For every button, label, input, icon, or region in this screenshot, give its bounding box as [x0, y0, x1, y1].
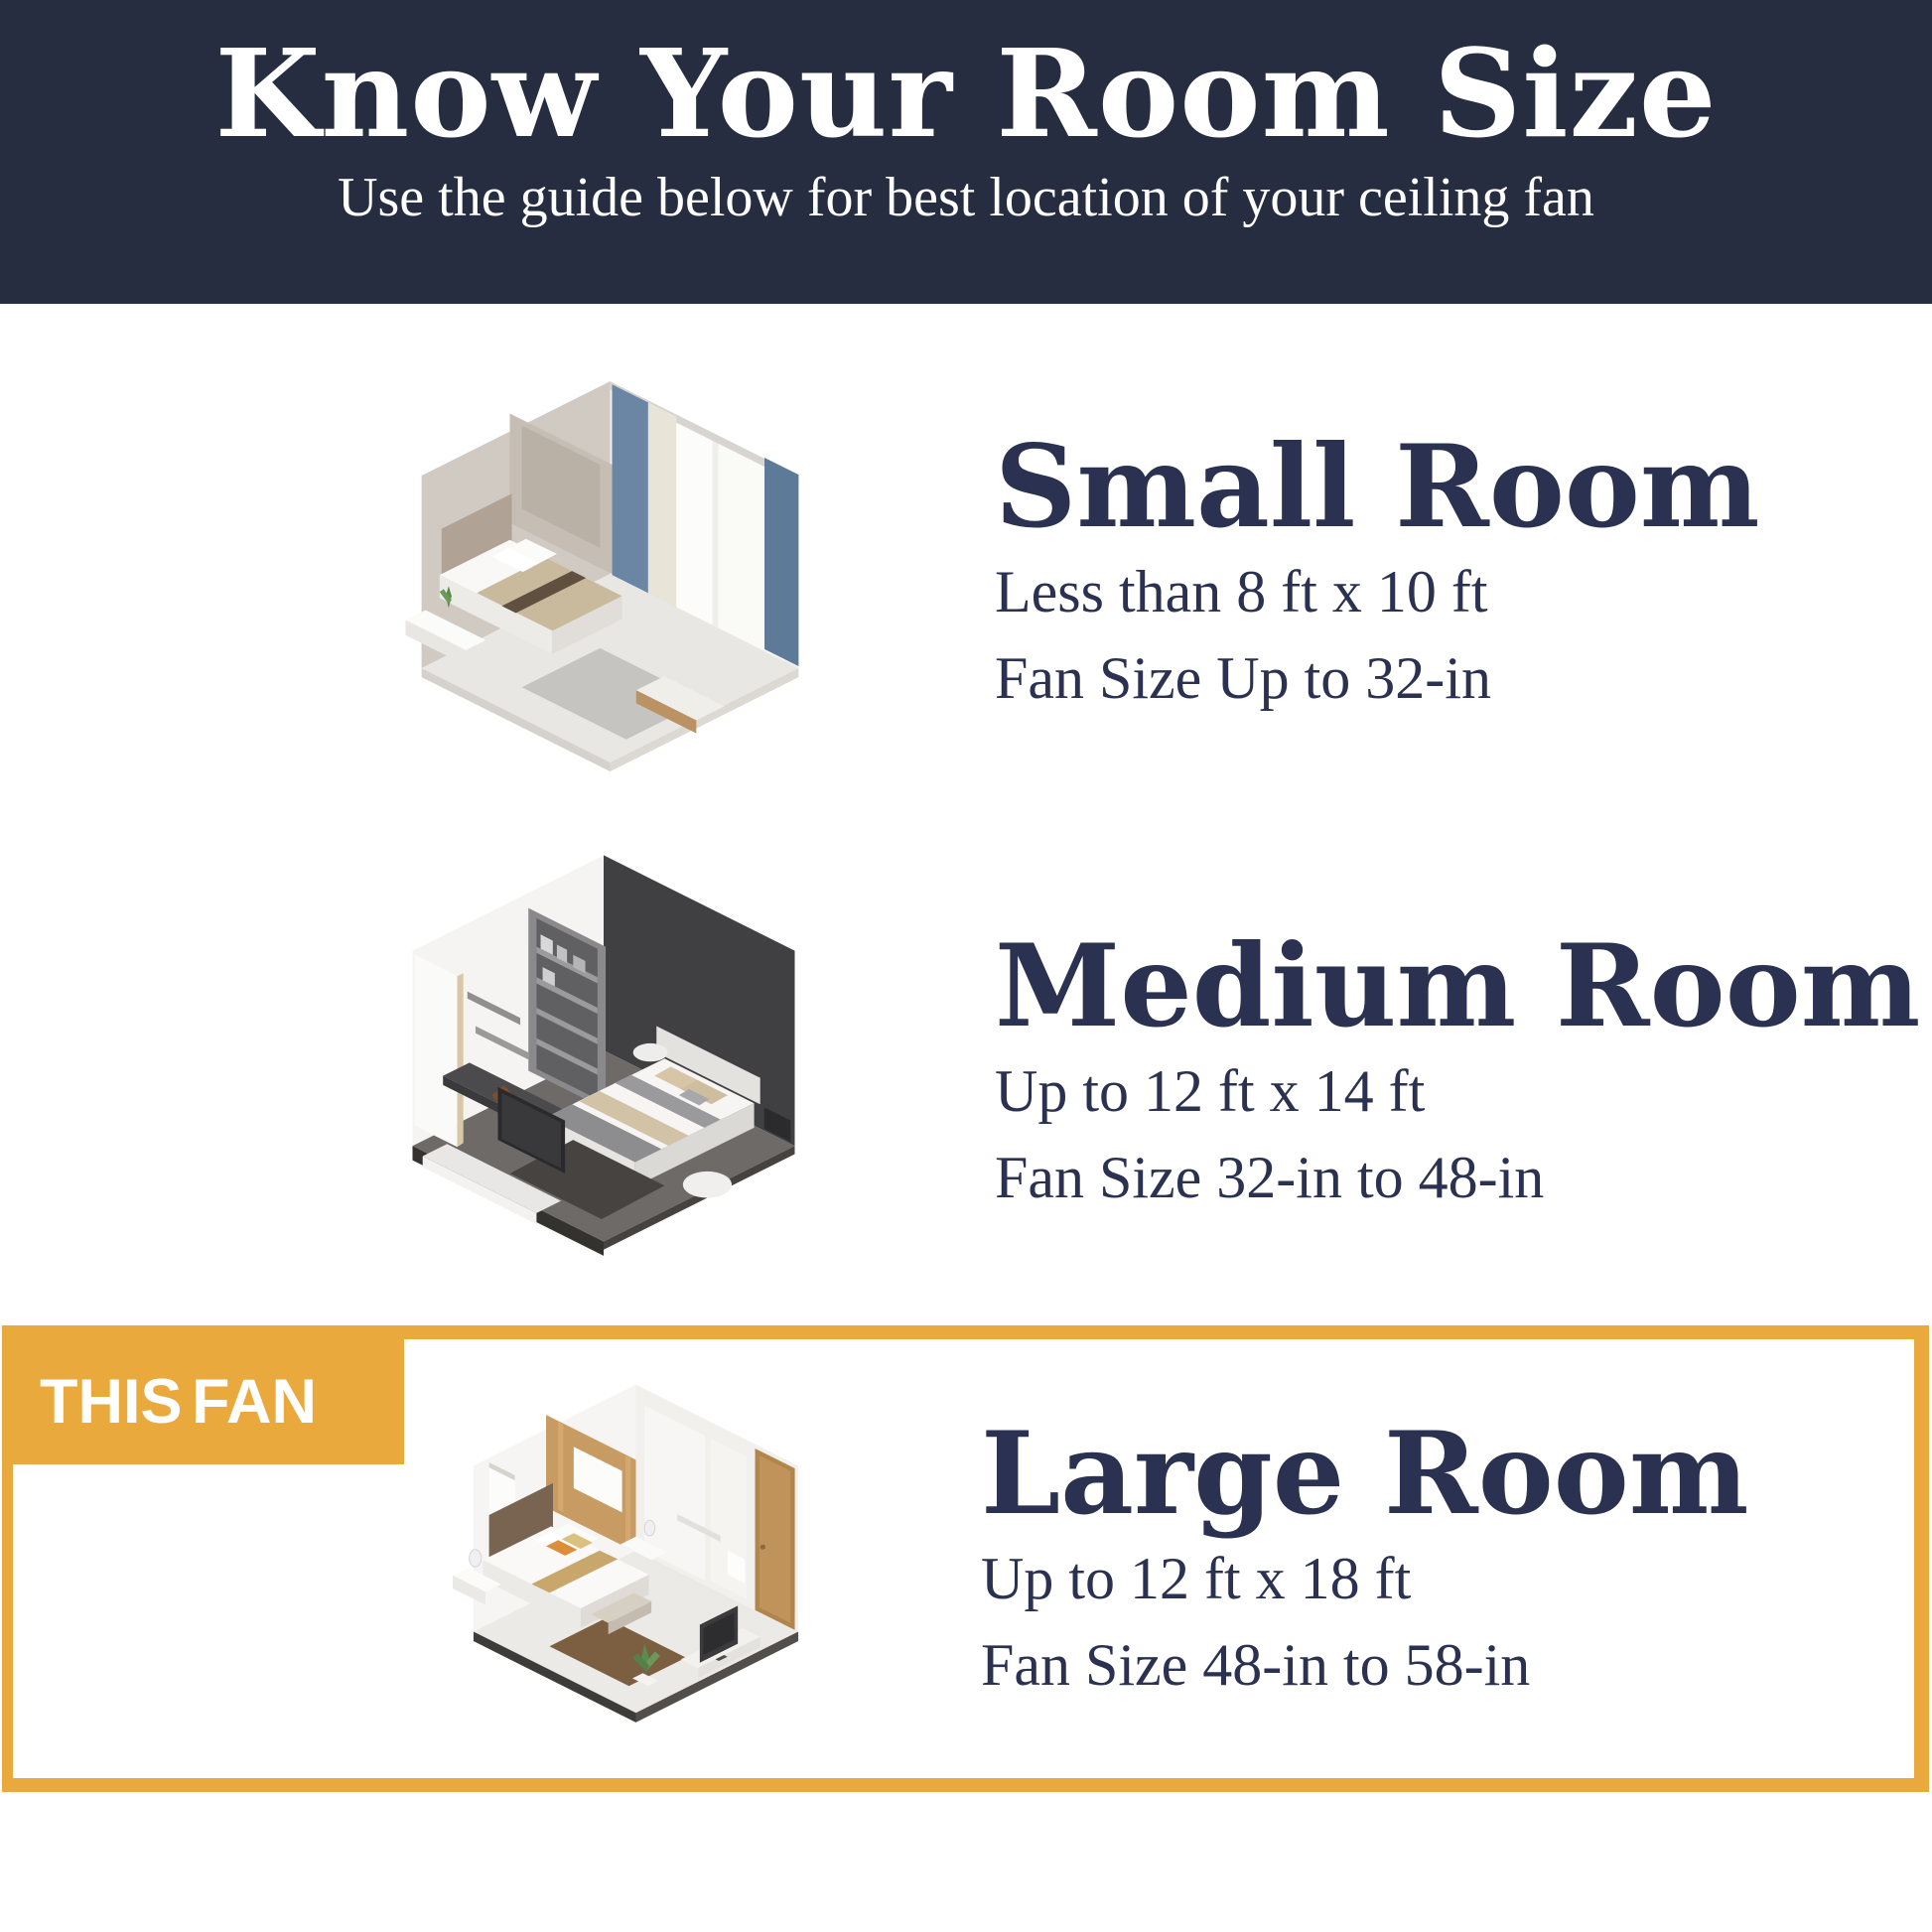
this-fan-badge: THIS FAN: [2, 1325, 404, 1464]
small-room-dimensions: Less than 8 ft x 10 ft: [995, 549, 1760, 635]
medium-room-isometric-drawing: [349, 837, 858, 1314]
room-size-infographic: Know Your Room Size Use the guide below …: [0, 0, 1932, 1932]
small-room-title: Small Room: [995, 430, 1760, 543]
large-room-copy: Large Room Up to 12 ft x 18 ft Fan Size …: [981, 1417, 1748, 1709]
large-room-fan-size: Fan Size 48-in to 58-in: [981, 1622, 1748, 1709]
page-subtitle: Use the guide below for best location of…: [0, 168, 1932, 229]
small-room-fan-size: Fan Size Up to 32-in: [995, 635, 1760, 722]
medium-room-copy: Medium Room Up to 12 ft x 14 ft Fan Size…: [995, 929, 1920, 1221]
small-room-copy: Small Room Less than 8 ft x 10 ft Fan Si…: [995, 430, 1760, 722]
page-title: Know Your Room Size: [0, 0, 1932, 154]
medium-room-title: Medium Room: [995, 929, 1920, 1042]
large-room-title: Large Room: [981, 1417, 1748, 1530]
small-room-isometric-drawing: [359, 363, 861, 835]
medium-room-illustration: [349, 837, 858, 1314]
small-room-illustration: [359, 363, 861, 835]
header-banner: Know Your Room Size Use the guide below …: [0, 0, 1932, 304]
large-room-dimensions: Up to 12 ft x 18 ft: [981, 1536, 1748, 1622]
medium-room-dimensions: Up to 12 ft x 14 ft: [995, 1048, 1920, 1135]
section-large-room: THIS FAN: [2, 1325, 1929, 1792]
large-room-isometric-drawing: [420, 1369, 852, 1775]
large-room-illustration: [420, 1369, 852, 1775]
medium-room-fan-size: Fan Size 32-in to 48-in: [995, 1135, 1920, 1221]
